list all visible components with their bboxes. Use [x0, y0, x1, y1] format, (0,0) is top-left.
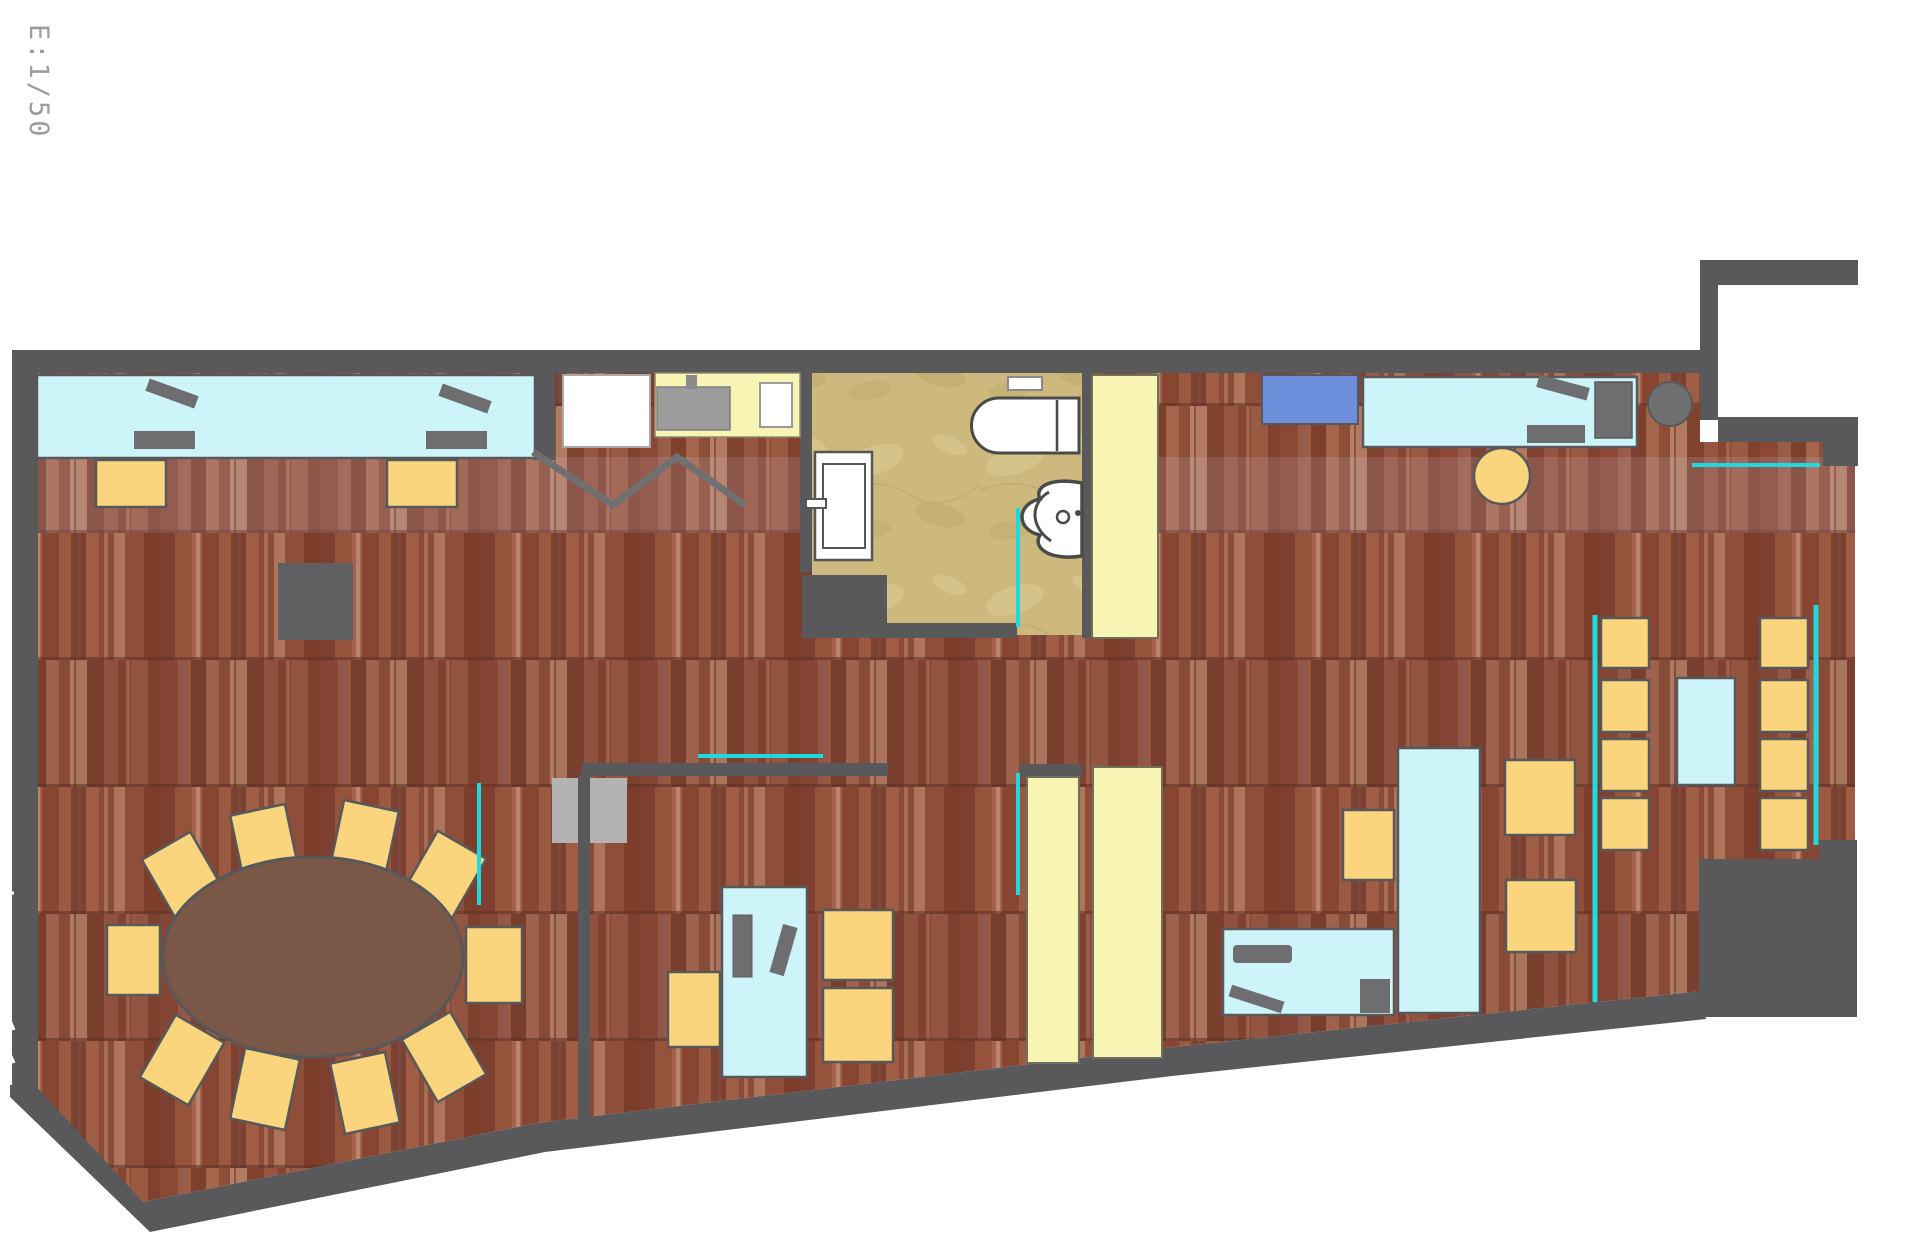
wall-nook-bottom	[1718, 417, 1858, 442]
chair	[1601, 798, 1649, 850]
chair	[668, 972, 720, 1047]
chair	[1760, 798, 1808, 850]
table-mid-right	[1677, 678, 1735, 785]
chair	[96, 460, 166, 507]
cpu-bottom-desk	[1360, 979, 1390, 1013]
door-panel-top	[1092, 375, 1158, 638]
wall-bath-corner	[802, 575, 887, 638]
keyboard-3	[1527, 425, 1585, 443]
wall-nook-right	[1823, 442, 1858, 466]
wall-divider-v	[578, 775, 590, 1123]
cabinet-gray-box	[278, 563, 353, 640]
wall-nook-arm	[1700, 260, 1718, 420]
sink-drain	[1057, 511, 1069, 523]
kitchen-basin	[760, 383, 792, 427]
entry-alcove	[1718, 285, 1858, 417]
bathroom-door-handle	[806, 499, 826, 508]
chair	[1506, 880, 1576, 952]
wall-bath-bottom	[887, 623, 1017, 638]
floor-band-dark-1	[38, 660, 1855, 787]
scale-label: E:1/50	[23, 24, 54, 140]
chair	[1601, 618, 1649, 668]
wall-bath-left	[800, 350, 812, 572]
door-panel-bottom-left	[1027, 777, 1079, 1063]
chair	[823, 988, 893, 1062]
round-side-table	[1648, 382, 1692, 426]
chair	[823, 910, 893, 980]
toilet	[971, 398, 1079, 453]
door-panel-bottom-right	[1093, 767, 1162, 1058]
fridge	[563, 375, 650, 447]
floor-plan-drawing: E:1/50	[0, 0, 1908, 1242]
door-panel-header	[1020, 764, 1082, 777]
chair	[1760, 739, 1808, 791]
chair	[387, 460, 457, 507]
chair	[1760, 680, 1808, 732]
printer	[1595, 382, 1632, 438]
bathroom-door-panel	[823, 464, 865, 548]
wall-kitchen	[533, 373, 555, 460]
conference-table	[163, 857, 463, 1057]
floor-plan-canvas: E:1/50	[0, 0, 1908, 1242]
wall-nook-top	[1700, 260, 1858, 285]
chair	[1601, 680, 1649, 732]
blue-cabinet	[1262, 375, 1358, 424]
cpu-small-desk	[733, 915, 752, 977]
kitchen-tap	[686, 375, 697, 389]
wall-divider-h	[582, 763, 888, 776]
wall-left	[12, 350, 38, 1090]
conference-chair	[466, 927, 522, 1003]
chair	[1505, 760, 1575, 835]
kitchen-sink-unit	[657, 387, 730, 430]
toilet-flush-button	[1008, 377, 1042, 390]
chair	[1760, 618, 1808, 668]
chair	[1601, 739, 1649, 791]
conference-chair	[107, 925, 160, 995]
dimension-tick	[0, 1032, 14, 1063]
keyboard-1	[134, 431, 195, 449]
shelf-bottom-desk	[1233, 945, 1292, 963]
chair	[1343, 810, 1394, 880]
dimension-tick	[0, 997, 14, 1030]
sink-tap-dot	[1075, 510, 1081, 516]
desk-vertical-right	[1398, 748, 1480, 1013]
wall-top	[12, 350, 1706, 373]
keyboard-2	[426, 431, 487, 449]
stair-block	[1699, 840, 1857, 1017]
chair-round	[1474, 448, 1530, 504]
